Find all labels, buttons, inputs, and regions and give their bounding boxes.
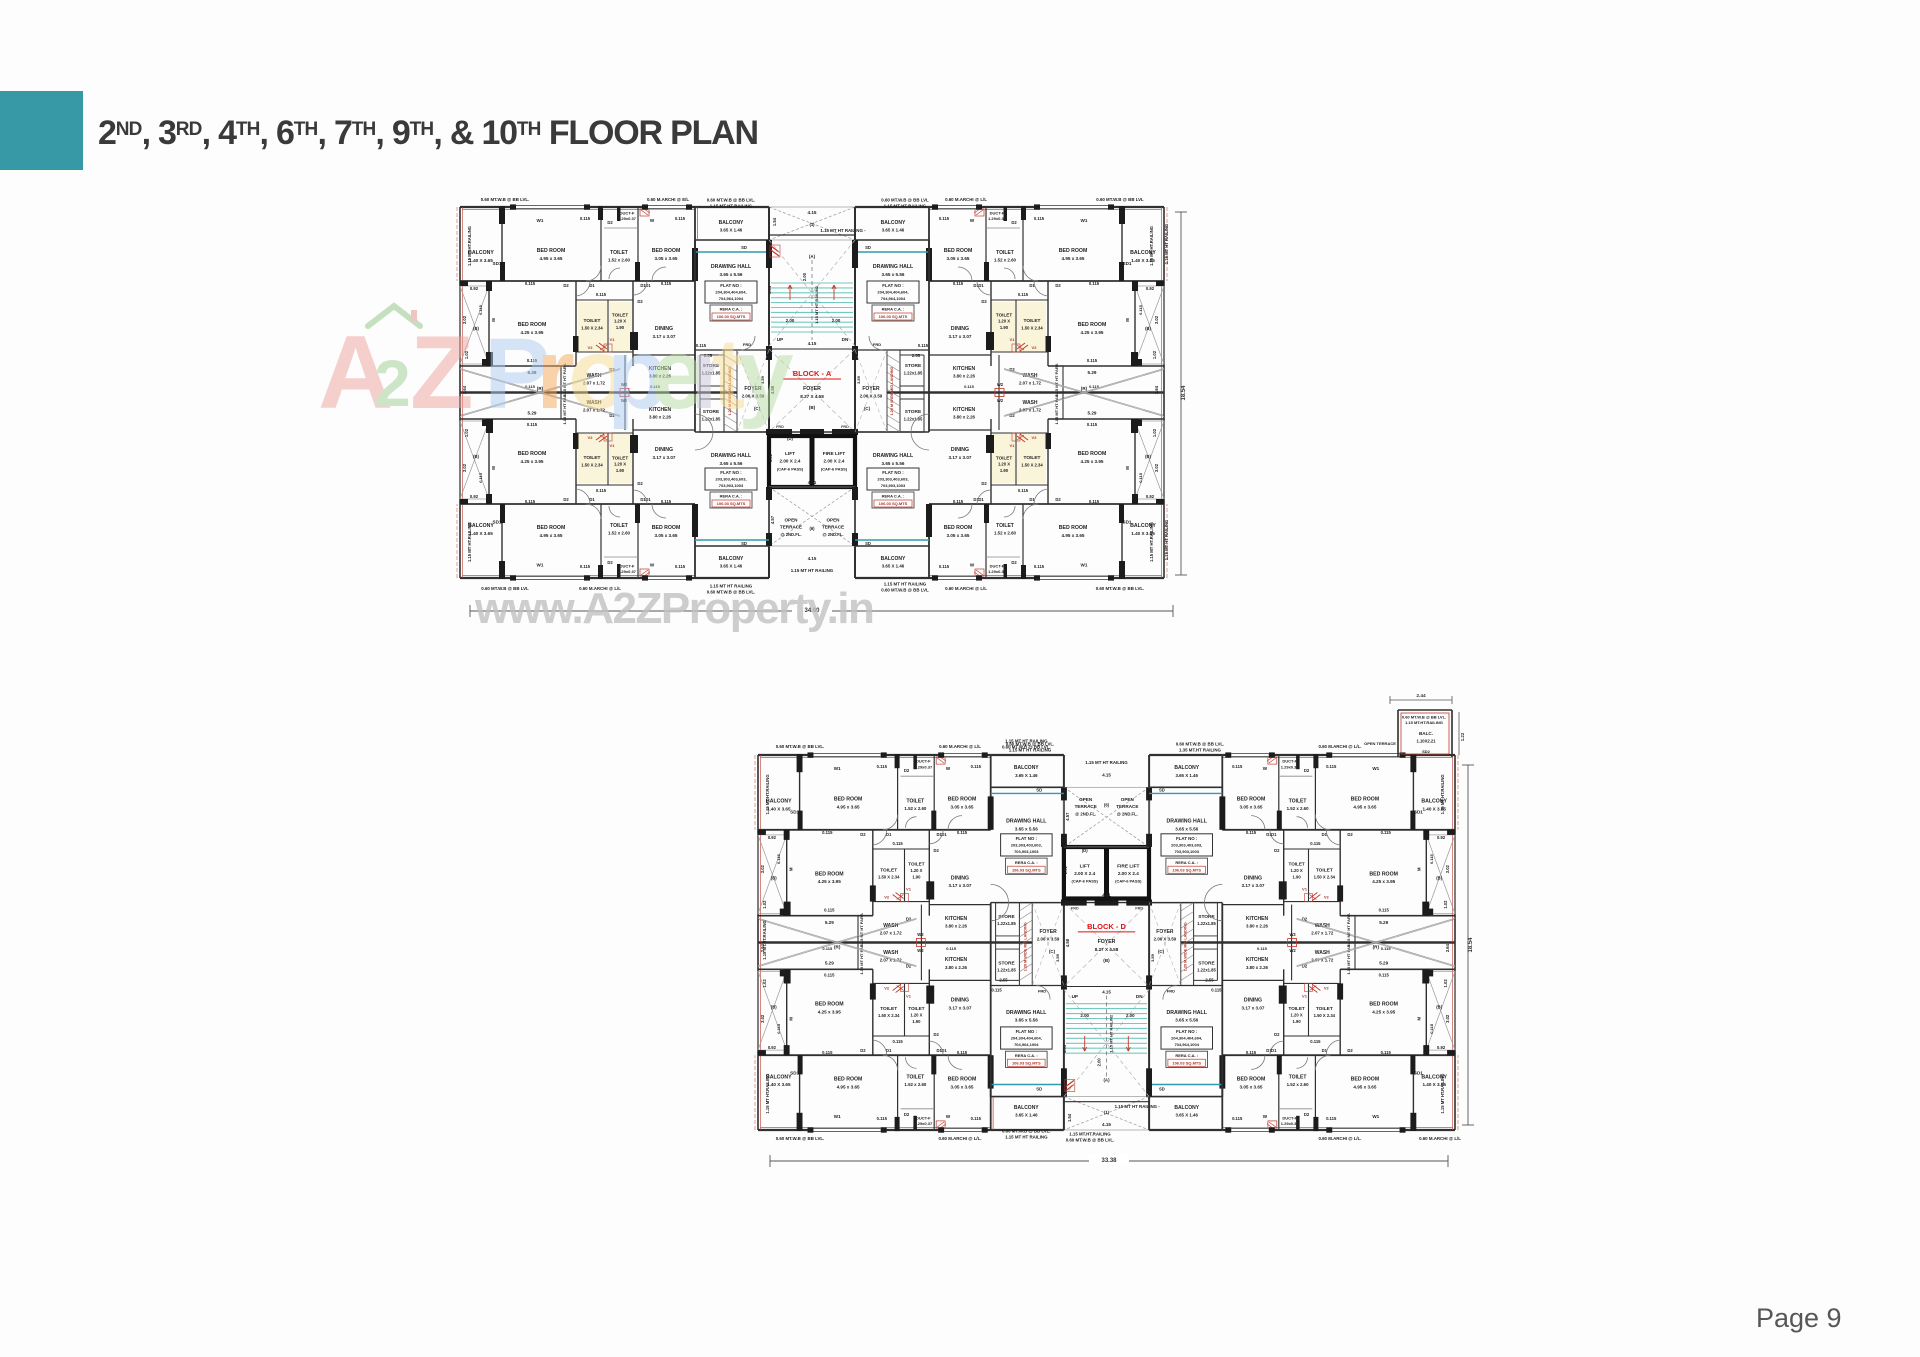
svg-text:4.95 x 3.65: 4.95 x 3.65 [1353, 804, 1376, 809]
svg-text:D2: D2 [1274, 1032, 1280, 1037]
svg-text:W2: W2 [1289, 932, 1296, 937]
svg-text:1.15 MT HT RAILIN2: 1.15 MT HT RAILIN2 [1108, 1014, 1113, 1053]
svg-text:0.92: 0.92 [470, 286, 479, 291]
svg-text:RERA C.A. :: RERA C.A. : [1015, 1053, 1038, 1058]
svg-text:0.115: 0.115 [1034, 564, 1045, 569]
svg-text:DUCT-F: DUCT-F [620, 211, 635, 216]
svg-text:2.64: 2.64 [1154, 385, 1159, 394]
svg-text:FLAT NO :: FLAT NO : [882, 470, 904, 475]
svg-text:0.60 M.ARCHI @ L/L: 0.60 M.ARCHI @ L/L [945, 586, 987, 591]
svg-text:3.17 x 3.07: 3.17 x 3.07 [949, 883, 972, 888]
svg-text:FRD: FRD [1167, 988, 1175, 993]
svg-text:0.115: 0.115 [1089, 281, 1100, 286]
svg-text:(A): (A) [809, 254, 816, 259]
svg-text:SD: SD [1159, 1087, 1165, 1092]
svg-text:0.92: 0.92 [1146, 494, 1155, 499]
svg-text:FRD: FRD [1038, 988, 1046, 993]
svg-text:2: 2 [374, 346, 411, 420]
svg-text:KITCHEN: KITCHEN [1246, 916, 1269, 922]
svg-text:RERA C.A. :: RERA C.A. : [1015, 860, 1038, 865]
svg-text:Z: Z [410, 315, 474, 431]
svg-text:0.115: 0.115 [1018, 292, 1029, 297]
svg-text:2.91: 2.91 [768, 453, 773, 462]
svg-text:0.115: 0.115 [1087, 358, 1098, 363]
svg-text:0.115: 0.115 [892, 841, 903, 846]
svg-text:4.61: 4.61 [1102, 893, 1111, 898]
svg-text:TERRACE: TERRACE [780, 525, 802, 530]
svg-text:0.115: 0.115 [675, 216, 686, 221]
svg-text:0.115: 0.115 [675, 564, 686, 569]
svg-text:D1: D1 [1271, 832, 1277, 837]
svg-text:1.15 MT HT.RAILING: 1.15 MT HT.RAILING [1440, 1074, 1445, 1114]
svg-text:0.92: 0.92 [1146, 286, 1155, 291]
svg-text:2.07 x 1.72: 2.07 x 1.72 [1311, 931, 1334, 936]
svg-text:(R): (R) [1373, 944, 1380, 949]
svg-text:DUCT-F: DUCT-F [990, 211, 1005, 216]
svg-text:TOILET: TOILET [880, 1006, 897, 1012]
svg-text:2.00 X 2.4: 2.00 X 2.4 [824, 459, 845, 464]
svg-text:BED ROOM: BED ROOM [1351, 797, 1380, 803]
svg-text:(B): (B) [771, 875, 777, 880]
svg-text:(B): (B) [1145, 454, 1151, 459]
svg-text:1.52 x 2.60: 1.52 x 2.60 [994, 258, 1017, 263]
svg-text:W: W [1263, 766, 1268, 771]
svg-text:4.15: 4.15 [808, 341, 817, 346]
svg-text:0.115: 0.115 [1089, 499, 1100, 504]
svg-text:D2: D2 [563, 497, 569, 502]
svg-text:W1: W1 [537, 218, 544, 223]
svg-text:1.29x0.37: 1.29x0.37 [988, 569, 1007, 574]
svg-text:0.115: 0.115 [939, 216, 950, 221]
svg-text:1.90: 1.90 [1000, 325, 1009, 330]
svg-text:BALCONY: BALCONY [468, 523, 494, 529]
svg-text:1.15 MT HT.RAILING: 1.15 MT HT.RAILING [1440, 774, 1445, 814]
svg-text:BALC.: BALC. [1419, 731, 1433, 736]
svg-text:0.115: 0.115 [957, 830, 968, 835]
svg-text:2.00: 2.00 [1080, 1013, 1089, 1018]
svg-text:8.27 X 4.58: 8.27 X 4.58 [800, 394, 824, 399]
svg-text:BALCONY: BALCONY [881, 220, 906, 226]
svg-text:0.115: 0.115 [1379, 908, 1390, 913]
svg-text:0.115: 0.115 [1379, 972, 1390, 977]
svg-text:1.52 x 2.60: 1.52 x 2.60 [904, 806, 927, 811]
svg-text:SD: SD [865, 541, 871, 546]
svg-text:BED ROOM: BED ROOM [537, 525, 566, 531]
svg-text:0.115: 0.115 [953, 281, 964, 286]
svg-text:1.15 MT HT.RAILING: 1.15 MT HT.RAILING [467, 226, 472, 266]
svg-text:M: M [789, 867, 794, 871]
svg-text:1.52 x 2.60: 1.52 x 2.60 [608, 531, 631, 536]
svg-text:1.20 X: 1.20 X [910, 1012, 922, 1017]
svg-text:TOILET: TOILET [1289, 799, 1307, 805]
svg-text:0.115: 0.115 [1246, 1050, 1257, 1055]
svg-text:0.115: 0.115 [1326, 1116, 1337, 1121]
svg-text:18.54: 18.54 [1468, 937, 1474, 953]
svg-text:BED ROOM: BED ROOM [518, 451, 547, 457]
svg-text:W1: W1 [834, 1114, 841, 1119]
svg-text:DINING: DINING [951, 326, 969, 332]
svg-text:FRD: FRD [841, 425, 849, 429]
svg-text:SD: SD [741, 245, 747, 250]
svg-text:0.60 MT.W.B @ BB LVL.: 0.60 MT.W.B @ BB LVL. [1006, 742, 1055, 747]
svg-text:y: y [738, 318, 794, 430]
svg-text:0.60 MT.W.B @ BB LVL.: 0.60 MT.W.B @ BB LVL. [1096, 586, 1145, 591]
svg-text:203,303,403,603,: 203,303,403,603, [1171, 843, 1202, 848]
svg-text:3.80 x 2.26: 3.80 x 2.26 [1246, 923, 1269, 928]
svg-text:1.15 MT.HT.RAILING: 1.15 MT.HT.RAILING [762, 920, 767, 960]
svg-text:(D): (D) [787, 436, 793, 441]
svg-text:STORE: STORE [998, 960, 1015, 966]
svg-text:W1: W1 [1081, 562, 1088, 567]
svg-text:STORE: STORE [1198, 960, 1215, 966]
svg-text:4.15: 4.15 [1102, 1122, 1111, 1127]
svg-text:8.27 X 4.58: 8.27 X 4.58 [1095, 947, 1119, 952]
svg-text:W2: W2 [1289, 948, 1296, 953]
svg-text:1.52 x 2.60: 1.52 x 2.60 [904, 1082, 927, 1087]
svg-text:0.115: 0.115 [776, 1023, 781, 1034]
svg-text:0.60 MT.W.B @ BB LVL.: 0.60 MT.W.B @ BB LVL. [1002, 1129, 1051, 1134]
svg-text:1.90: 1.90 [1293, 1019, 1302, 1024]
svg-text:1.90: 1.90 [1293, 874, 1302, 879]
svg-text:W1: W1 [1372, 766, 1379, 771]
svg-text:DRAWING HALL: DRAWING HALL [711, 453, 752, 459]
svg-text:4.15: 4.15 [808, 210, 817, 215]
svg-text:D1: D1 [937, 1048, 943, 1053]
svg-text:TOILET: TOILET [612, 455, 628, 460]
svg-text:1.29x0.37: 1.29x0.37 [914, 1121, 933, 1126]
svg-text:(CAP-6 PASS): (CAP-6 PASS) [821, 466, 848, 471]
svg-text:D1: D1 [978, 497, 984, 502]
svg-text:TOILET: TOILET [908, 1006, 924, 1011]
svg-text:1.02: 1.02 [1152, 428, 1157, 437]
svg-text:TOILET: TOILET [610, 250, 628, 256]
svg-text:1.15 MT HT.RAILING: 1.15 MT HT.RAILING [467, 522, 472, 562]
svg-text:DRAWING HALL: DRAWING HALL [873, 453, 914, 459]
svg-text:1.20 X: 1.20 X [998, 462, 1010, 467]
svg-text:(CAP-6 PASS): (CAP-6 PASS) [1115, 879, 1142, 884]
svg-text:1.15 MT HT PARA: 1.15 MT HT PARA [1054, 391, 1059, 424]
svg-text:BED ROOM: BED ROOM [948, 1077, 977, 1083]
svg-text:3.17 x 3.07: 3.17 x 3.07 [949, 334, 972, 339]
svg-text:1.29x0.37: 1.29x0.37 [1281, 764, 1300, 769]
svg-text:1.22: 1.22 [1460, 732, 1465, 741]
svg-text:0.115: 0.115 [824, 972, 835, 977]
svg-text:2.55: 2.55 [912, 353, 921, 358]
svg-text:W: W [946, 766, 951, 771]
svg-text:W1: W1 [1081, 218, 1088, 223]
svg-text:0.115: 0.115 [478, 472, 483, 483]
svg-text:W: W [650, 218, 655, 223]
svg-text:4.61: 4.61 [808, 480, 817, 485]
svg-text:FRD: FRD [1135, 906, 1143, 910]
svg-text:D2: D2 [934, 1032, 940, 1037]
svg-text:3.02: 3.02 [1154, 315, 1159, 324]
svg-text:1.15 MT HT RAILING -: 1.15 MT HT RAILING - [1115, 1104, 1161, 1109]
svg-text:TOILET: TOILET [996, 455, 1012, 460]
svg-text:FLAT NO :: FLAT NO : [720, 470, 742, 475]
svg-text:3.02: 3.02 [462, 463, 467, 472]
svg-text:0.60 MT.W.B @ BB LVL: 0.60 MT.W.B @ BB LVL [1096, 197, 1144, 202]
svg-text:DINING: DINING [1244, 998, 1262, 1004]
svg-text:D1: D1 [978, 283, 984, 288]
svg-text:1.15 MT HT RAILING: 1.15 MT HT RAILING [791, 568, 834, 573]
svg-text:0.115: 0.115 [1310, 1039, 1321, 1044]
svg-text:0.115: 0.115 [525, 499, 536, 504]
svg-text:204,304,404,604,: 204,304,404,604, [1011, 1036, 1042, 1041]
svg-text:0.92: 0.92 [470, 494, 479, 499]
svg-text:W: W [970, 218, 975, 223]
svg-text:0.92: 0.92 [768, 835, 777, 840]
svg-text:TOILET: TOILET [996, 523, 1014, 529]
svg-text:W: W [970, 562, 975, 567]
svg-text:BALCONY: BALCONY [468, 250, 494, 256]
svg-text:D2: D2 [637, 299, 643, 304]
svg-text:3.65 x 5.56: 3.65 x 5.56 [1175, 1018, 1198, 1023]
svg-text:1.20 X: 1.20 X [1291, 1012, 1303, 1017]
svg-text:D2: D2 [1274, 848, 1280, 853]
svg-text:TOILET: TOILET [996, 250, 1014, 256]
svg-text:D2: D2 [904, 1112, 910, 1117]
svg-text:1.15 MT HT RAILING: 1.15 MT HT RAILING [1085, 760, 1128, 765]
svg-text:W2: W2 [997, 382, 1004, 387]
svg-text:TOILET: TOILET [908, 862, 924, 867]
svg-text:2.00: 2.00 [802, 272, 807, 281]
svg-text:W: W [946, 1114, 951, 1119]
svg-text:4.95 x 3.65: 4.95 x 3.65 [1353, 1084, 1376, 1089]
svg-text:1.15 MT HT RAILING: 1.15 MT HT RAILING [884, 582, 927, 587]
svg-text:1.29x0.37: 1.29x0.37 [1281, 1121, 1300, 1126]
svg-text:BLOCK - D: BLOCK - D [1087, 922, 1126, 931]
svg-text:(6): (6) [809, 526, 815, 531]
svg-text:1.15 MT HT.RAILING: 1.15 MT HT.RAILING [1149, 226, 1154, 266]
svg-text:W1: W1 [537, 562, 544, 567]
svg-text:BED ROOM: BED ROOM [948, 797, 977, 803]
svg-text:1.50 X 2.34: 1.50 X 2.34 [878, 875, 900, 880]
svg-text:0.115: 0.115 [877, 1116, 888, 1121]
svg-text:(C): (C) [1158, 949, 1165, 954]
svg-text:(B): (B) [473, 326, 479, 331]
svg-text:3.65 x 5.56: 3.65 x 5.56 [720, 461, 743, 466]
svg-text:1.02: 1.02 [1152, 350, 1157, 359]
svg-text:1.22x1.85: 1.22x1.85 [904, 416, 923, 421]
svg-text:0.115: 0.115 [596, 292, 607, 297]
svg-text:4.25 x 3.95: 4.25 x 3.95 [1081, 459, 1104, 464]
svg-text:2.06 X 3.59: 2.06 X 3.59 [1154, 937, 1177, 942]
svg-text:WASH: WASH [1315, 950, 1330, 956]
svg-text:OPEN: OPEN [784, 517, 798, 522]
svg-text:3.65 X 1.46: 3.65 X 1.46 [1015, 773, 1038, 778]
svg-text:V1: V1 [906, 993, 912, 998]
svg-text:FOYER: FOYER [1098, 939, 1116, 945]
svg-text:4.95 x 3.65: 4.95 x 3.65 [837, 804, 860, 809]
svg-text:TOILET: TOILET [1024, 455, 1041, 461]
svg-text:5.29: 5.29 [825, 961, 834, 966]
svg-text:1.29x0.37: 1.29x0.37 [914, 764, 933, 769]
svg-text:0.115: 0.115 [1429, 1023, 1434, 1034]
svg-text:1.90: 1.90 [616, 468, 625, 473]
svg-text:DUCT-F: DUCT-F [916, 759, 931, 764]
svg-text:V2: V2 [1324, 985, 1330, 990]
svg-text:1.20 M WIDE MID LANDING: 1.20 M WIDE MID LANDING [1023, 922, 1027, 971]
svg-text:BED ROOM: BED ROOM [944, 248, 973, 254]
svg-text:18.54: 18.54 [1181, 385, 1187, 401]
svg-text:DRAWING HALL: DRAWING HALL [1167, 1010, 1208, 1016]
svg-text:1.02: 1.02 [762, 979, 767, 988]
svg-text:1.20 M WIDE MID LANDING: 1.20 M WIDE MID LANDING [1184, 922, 1188, 971]
svg-text:3.65 x 5.56: 3.65 x 5.56 [882, 272, 905, 277]
svg-text:BALCONY: BALCONY [881, 556, 906, 562]
svg-text:0.115: 0.115 [580, 216, 591, 221]
svg-text:D2: D2 [1347, 832, 1353, 837]
svg-text:4.25 x 3.95: 4.25 x 3.95 [818, 879, 841, 884]
svg-text:1.40 X 3.65: 1.40 X 3.65 [767, 806, 791, 811]
svg-text:1.15 MT HT.RAILING: 1.15 MT HT.RAILING [765, 1074, 770, 1114]
svg-text:FIRE LIFT: FIRE LIFT [823, 451, 845, 457]
svg-text:D1: D1 [640, 283, 646, 288]
svg-text:4.54: 4.54 [767, 285, 772, 294]
svg-text:0.115: 0.115 [991, 988, 1002, 993]
svg-text:4.15: 4.15 [1102, 990, 1111, 995]
svg-text:FLAT NO :: FLAT NO : [1016, 1029, 1038, 1034]
svg-text:(B): (B) [1103, 958, 1110, 963]
svg-text:0.115: 0.115 [964, 384, 975, 389]
svg-text:D2: D2 [1011, 560, 1017, 565]
svg-text:BED ROOM: BED ROOM [1059, 525, 1088, 531]
svg-text:0.115: 0.115 [525, 281, 536, 286]
svg-text:1.52 x 2.60: 1.52 x 2.60 [608, 258, 631, 263]
svg-text:SD: SD [865, 245, 871, 250]
svg-text:0.60 MT.W.B @ BB LVL: 0.60 MT.W.B @ BB LVL [881, 198, 929, 203]
svg-text:0.92: 0.92 [768, 1045, 777, 1050]
svg-text:3.65 x 5.56: 3.65 x 5.56 [1175, 827, 1198, 832]
svg-text:5.29: 5.29 [1379, 961, 1388, 966]
svg-text:3.05 x 3.65: 3.05 x 3.65 [1240, 1084, 1263, 1089]
svg-text:1.20 X: 1.20 X [998, 319, 1010, 324]
svg-text:2.00 X 2.4: 2.00 X 2.4 [780, 459, 801, 464]
svg-text:0.115: 0.115 [892, 1039, 903, 1044]
svg-text:0.60 MT.W.B @ BB LVL.: 0.60 MT.W.B @ BB LVL. [1402, 715, 1446, 720]
svg-text:106.03 SQ.MTS: 106.03 SQ.MTS [879, 314, 908, 319]
svg-text:W2: W2 [917, 948, 924, 953]
svg-text:TERRACE: TERRACE [822, 525, 844, 530]
svg-text:1.40 X 3.65: 1.40 X 3.65 [767, 1082, 791, 1087]
svg-text:0.60 M.ARCHI @ L/L: 0.60 M.ARCHI @ L/L [939, 744, 981, 749]
svg-text:1.90: 1.90 [912, 1019, 921, 1024]
svg-text:DUCT-F: DUCT-F [990, 564, 1005, 569]
svg-text:1.22x1.85: 1.22x1.85 [1197, 968, 1216, 973]
svg-text:1.52 x 2.60: 1.52 x 2.60 [994, 531, 1017, 536]
svg-text:(C): (C) [1049, 949, 1056, 954]
svg-text:1.50 X 2.34: 1.50 X 2.34 [581, 462, 603, 467]
svg-text:TOILET: TOILET [612, 312, 628, 317]
svg-text:STORE: STORE [905, 409, 922, 415]
svg-text:TOILET: TOILET [1289, 1075, 1307, 1081]
svg-text:3.17 x 3.07: 3.17 x 3.07 [1242, 883, 1265, 888]
svg-text:STORE: STORE [998, 914, 1015, 920]
svg-text:3.65 x 5.56: 3.65 x 5.56 [1015, 827, 1038, 832]
svg-text:203,303,403,603,: 203,303,403,603, [715, 477, 746, 482]
svg-text:0.60 MT.W.B @ BB LVL.: 0.60 MT.W.B @ BB LVL. [481, 197, 530, 202]
svg-text:0.60 MT.W.B @ BB LVL.: 0.60 MT.W.B @ BB LVL. [776, 744, 825, 749]
svg-text:BALCONY: BALCONY [1174, 765, 1199, 771]
svg-text:DUCT-F: DUCT-F [1282, 1116, 1297, 1121]
svg-text:(B): (B) [473, 454, 479, 459]
svg-text:D2: D2 [1011, 220, 1017, 225]
svg-text:1.02: 1.02 [1443, 979, 1448, 988]
svg-text:1.15 MT HT RAILING: 1.15 MT HT RAILING [1005, 1135, 1048, 1140]
svg-text:M: M [491, 466, 496, 470]
svg-text:FLAT NO :: FLAT NO : [1176, 836, 1198, 841]
svg-text:(CAP-6 PASS): (CAP-6 PASS) [1072, 879, 1099, 884]
svg-text:3.02: 3.02 [1445, 864, 1450, 873]
svg-text:TOILET: TOILET [907, 799, 925, 805]
svg-text:(A): (A) [1103, 1078, 1110, 1083]
svg-text:0.60 M.ARCHI @ L/L.: 0.60 M.ARCHI @ L/L. [938, 1136, 981, 1141]
svg-text:BALCONY: BALCONY [1014, 765, 1039, 771]
svg-text:FLAT NO :: FLAT NO : [882, 283, 904, 288]
svg-text:4.15: 4.15 [1102, 772, 1111, 777]
svg-text:2.55: 2.55 [1205, 977, 1214, 982]
svg-text:0.115: 0.115 [1232, 764, 1243, 769]
svg-text:D1: D1 [589, 497, 595, 502]
svg-text:STORE: STORE [1198, 914, 1215, 920]
svg-text:BED ROOM: BED ROOM [834, 797, 863, 803]
svg-text:BALCONY: BALCONY [719, 556, 744, 562]
svg-text:TOILET: TOILET [1316, 1006, 1333, 1012]
svg-text:3.65 X 1.46: 3.65 X 1.46 [882, 564, 905, 569]
svg-text:SD: SD [1036, 1087, 1042, 1092]
svg-text:BED ROOM: BED ROOM [1078, 451, 1107, 457]
svg-text:TOILET: TOILET [1288, 1006, 1304, 1011]
svg-text:1.90: 1.90 [912, 874, 921, 879]
svg-text:@ 2ND.FL.: @ 2ND.FL. [1117, 812, 1138, 817]
svg-text:1.54: 1.54 [772, 217, 777, 226]
svg-text:1.15 MT HT RAILING: 1.15 MT HT RAILING [710, 204, 753, 209]
svg-text:0.60 M.ARCHI @ L/L.: 0.60 M.ARCHI @ L/L. [1318, 1136, 1361, 1141]
svg-text:FRD: FRD [873, 342, 881, 347]
svg-text:(C): (C) [864, 406, 871, 411]
svg-text:2.44: 2.44 [1416, 693, 1426, 699]
svg-text:4.25 x 3.95: 4.25 x 3.95 [1372, 1010, 1395, 1015]
svg-text:W: W [650, 562, 655, 567]
svg-text:DN: DN [842, 337, 849, 342]
svg-text:D1: D1 [589, 283, 595, 288]
svg-text:D2: D2 [981, 481, 987, 486]
svg-text:V2: V2 [1324, 895, 1330, 900]
svg-text:D2: D2 [607, 220, 613, 225]
svg-text:KITCHEN: KITCHEN [953, 366, 976, 372]
svg-text:0.115: 0.115 [1381, 946, 1392, 951]
svg-text:2.07 x 1.72: 2.07 x 1.72 [1019, 408, 1042, 413]
svg-text:1.29x0.37: 1.29x0.37 [618, 569, 637, 574]
svg-text:D2: D2 [860, 832, 866, 837]
svg-text:FOYER: FOYER [803, 386, 821, 392]
svg-text:1.22x1.85: 1.22x1.85 [997, 968, 1016, 973]
svg-text:3.17 x 3.07: 3.17 x 3.07 [653, 455, 676, 460]
svg-text:D1: D1 [1271, 1048, 1277, 1053]
svg-text:V1: V1 [610, 443, 616, 448]
svg-text:W1: W1 [834, 766, 841, 771]
svg-text:3.65 X 1.46: 3.65 X 1.46 [882, 228, 905, 233]
svg-text:1.15 MT HT RAILIN2: 1.15 MT HT RAILIN2 [814, 285, 819, 324]
svg-text:V1: V1 [1010, 337, 1016, 342]
svg-text:0.60 MT.W.B @ BB LVL.: 0.60 MT.W.B @ BB LVL. [1176, 742, 1225, 747]
svg-text:V2: V2 [884, 895, 890, 900]
svg-text:4.25 x 3.95: 4.25 x 3.95 [818, 1010, 841, 1015]
svg-text:1.29x0.37: 1.29x0.37 [618, 216, 637, 221]
svg-text:D2: D2 [563, 283, 569, 288]
svg-text:1.52 x 2.60: 1.52 x 2.60 [1287, 1082, 1310, 1087]
